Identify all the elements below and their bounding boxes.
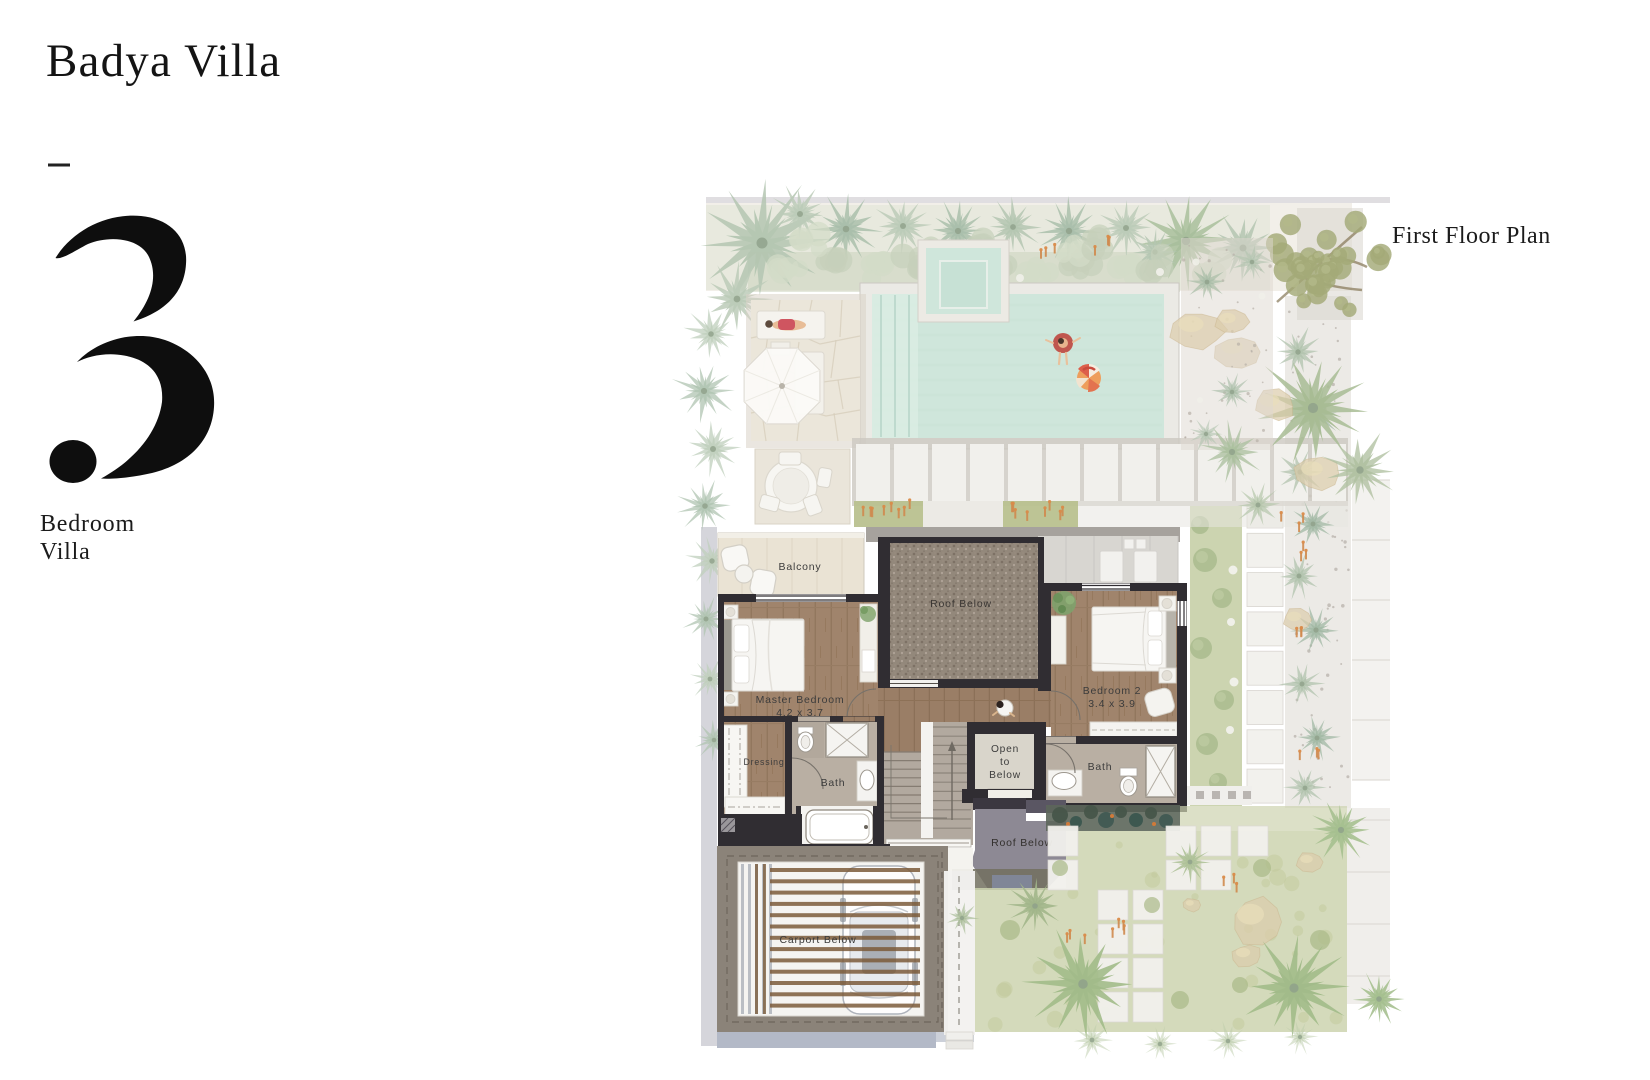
svg-text:First Floor Plan: First Floor Plan — [1392, 223, 1551, 249]
svg-text:to: to — [1000, 757, 1010, 768]
svg-text:Villa: Villa — [40, 539, 91, 565]
svg-text:Bedroom: Bedroom — [40, 511, 135, 537]
svg-text:Carport Below: Carport Below — [780, 934, 857, 946]
svg-text:Bath: Bath — [821, 777, 846, 789]
svg-text:Dressing: Dressing — [743, 757, 784, 767]
svg-text:3.4 x 3.9: 3.4 x 3.9 — [1088, 698, 1135, 710]
svg-text:Below: Below — [989, 770, 1021, 781]
svg-text:Master Bedroom: Master Bedroom — [756, 694, 845, 706]
svg-text:Roof Below: Roof Below — [930, 598, 992, 610]
svg-text:Open: Open — [991, 744, 1019, 755]
svg-text:Badya Villa: Badya Villa — [46, 35, 281, 87]
svg-text:Bath: Bath — [1088, 761, 1113, 773]
svg-text:Bedroom 2: Bedroom 2 — [1083, 685, 1142, 697]
svg-text:Balcony: Balcony — [779, 561, 822, 573]
svg-text:Roof Below: Roof Below — [991, 837, 1053, 849]
